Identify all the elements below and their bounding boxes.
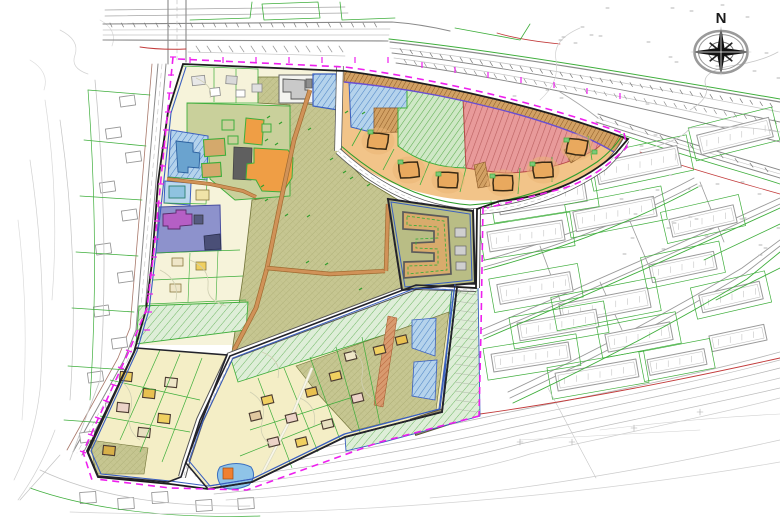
svg-text:N: N — [716, 10, 727, 27]
